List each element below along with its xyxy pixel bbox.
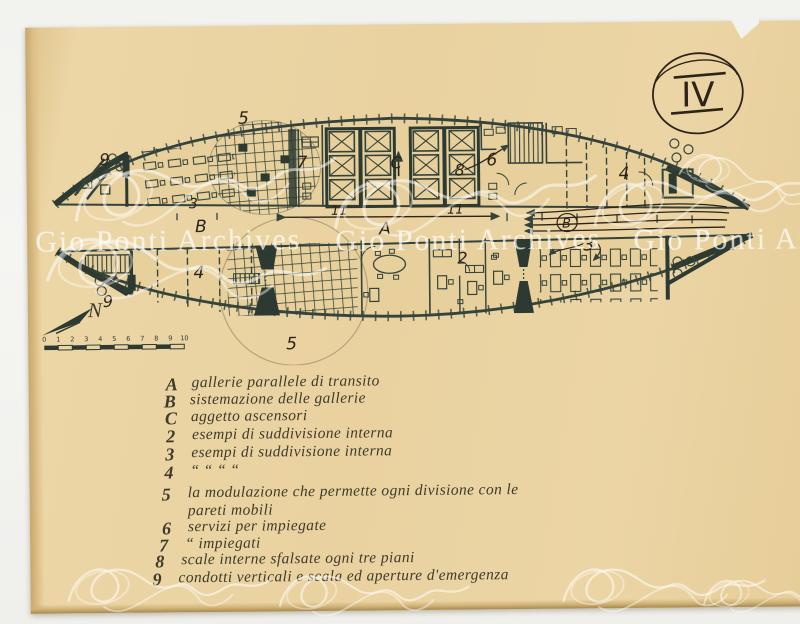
label-top-area-5: 5: [238, 109, 249, 129]
svg-text:9: 9: [168, 334, 172, 342]
sheet-number: IV: [681, 75, 715, 115]
svg-text:0: 0: [42, 336, 46, 344]
scale-bar-segments: [44, 344, 184, 350]
svg-text:10: 10: [180, 334, 188, 342]
svg-text:1: 1: [56, 335, 60, 343]
svg-text:7: 7: [140, 335, 144, 343]
scale-bar: 0 1 2 3 4 5 6 7 8 9 10: [42, 334, 188, 350]
svg-text:5: 5: [112, 335, 116, 343]
svg-text:3: 3: [84, 335, 88, 343]
scanned-sheet: N 0 1 2 3 4 5 6 7 8 9 10: [0, 0, 800, 624]
legend-line-4: 4“ “ “ “: [164, 462, 239, 484]
paper-sheet: N 0 1 2 3 4 5 6 7 8 9 10: [25, 20, 800, 613]
legend-text: “ “ “ “: [190, 462, 239, 480]
legend-text: aggetto ascensori: [191, 407, 308, 426]
legend-text: la modulazione che permette ogni divisio…: [188, 481, 519, 520]
svg-text:6: 6: [126, 335, 130, 343]
watermark-flourish: [35, 212, 341, 340]
svg-text:2: 2: [70, 335, 74, 343]
svg-text:8: 8: [154, 334, 158, 342]
legend-text: esempi di suddivisione interna: [192, 424, 393, 444]
legend-key: 4: [164, 462, 190, 483]
svg-text:4: 4: [98, 335, 102, 343]
watermark-flourish: [700, 560, 800, 624]
legend-key: 5: [162, 484, 188, 505]
legend-text: servizi per impiegate: [188, 517, 327, 536]
legend-line-5: 5la modulazione che permette ogni divisi…: [162, 481, 519, 520]
legend-text: sistemazione delle gallerie: [190, 390, 366, 410]
legend-text: esempi di suddivisione interna: [191, 442, 392, 462]
watermark-flourish: [250, 560, 500, 624]
